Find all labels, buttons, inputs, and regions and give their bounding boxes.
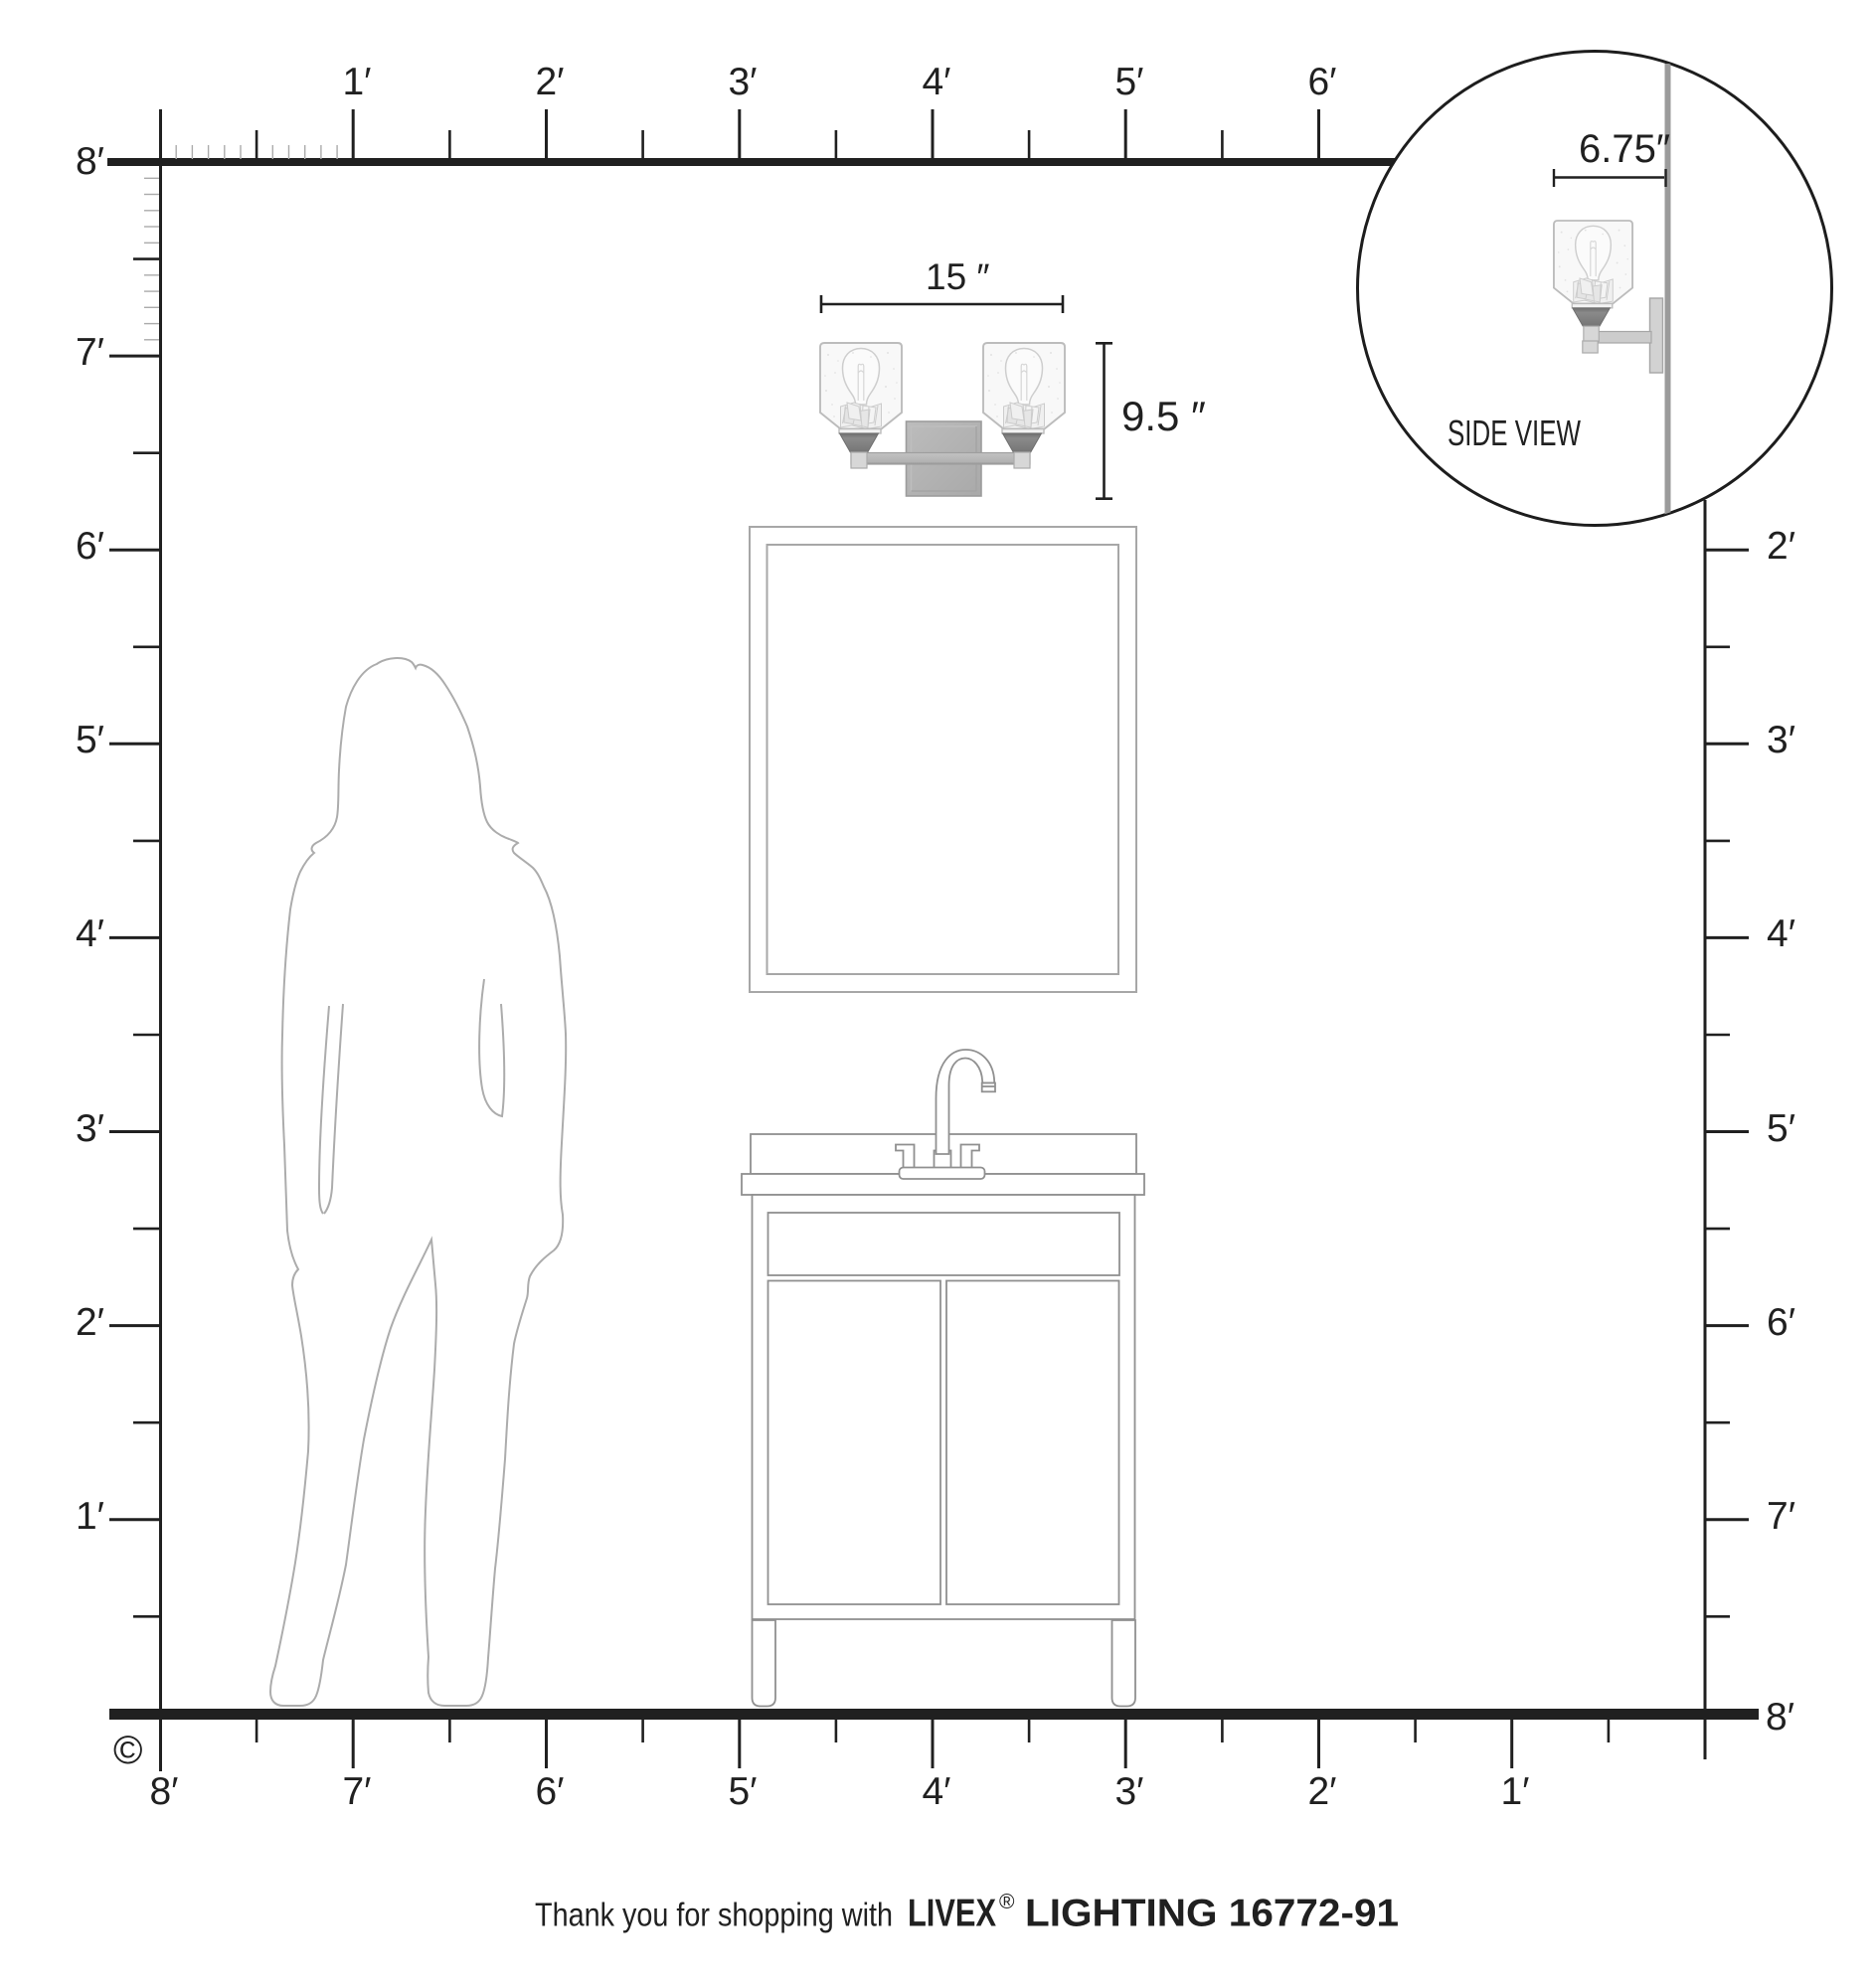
svg-text:6′: 6′ (535, 1770, 564, 1813)
svg-text:7′: 7′ (1767, 1495, 1795, 1538)
svg-text:3′: 3′ (76, 1107, 104, 1150)
svg-text:8′: 8′ (149, 1770, 178, 1813)
svg-text:2′: 2′ (1307, 1770, 1336, 1813)
svg-text:5′: 5′ (728, 1770, 757, 1813)
svg-text:2′: 2′ (1767, 525, 1795, 568)
svg-text:3′: 3′ (728, 61, 757, 103)
svg-text:4′: 4′ (1767, 912, 1795, 955)
svg-text:6′: 6′ (1307, 61, 1336, 103)
svg-text:Thank you for shopping with: Thank you for shopping with (535, 1897, 893, 1933)
svg-text:2′: 2′ (76, 1301, 104, 1344)
svg-text:1′: 1′ (76, 1495, 104, 1538)
svg-text:6′: 6′ (76, 525, 104, 568)
svg-text:6′: 6′ (1767, 1301, 1795, 1344)
svg-text:®: ® (999, 1891, 1015, 1913)
svg-text:8′: 8′ (76, 140, 104, 183)
svg-text:5′: 5′ (1767, 1107, 1795, 1150)
svg-text:SIDE VIEW: SIDE VIEW (1448, 413, 1581, 453)
svg-text:©: © (113, 1729, 142, 1772)
svg-text:5′: 5′ (76, 719, 104, 761)
svg-text:3′: 3′ (1767, 719, 1795, 761)
svg-text:8′: 8′ (1766, 1696, 1794, 1739)
svg-text:6.75″: 6.75″ (1579, 127, 1670, 171)
svg-text:4′: 4′ (922, 61, 950, 103)
svg-text:7′: 7′ (76, 331, 104, 374)
svg-text:9.5 ″: 9.5 ″ (1121, 393, 1206, 439)
svg-text:4′: 4′ (922, 1770, 950, 1813)
svg-text:1′: 1′ (1500, 1770, 1529, 1813)
svg-text:15 ″: 15 ″ (926, 256, 990, 297)
svg-text:2′: 2′ (535, 61, 564, 103)
svg-text:1′: 1′ (342, 61, 371, 103)
svg-text:LIGHTING 16772-91: LIGHTING 16772-91 (1025, 1893, 1399, 1935)
svg-text:4′: 4′ (76, 912, 104, 955)
svg-text:7′: 7′ (342, 1770, 371, 1813)
svg-text:LIVEX: LIVEX (908, 1893, 996, 1935)
svg-text:5′: 5′ (1114, 61, 1143, 103)
svg-text:3′: 3′ (1114, 1770, 1143, 1813)
